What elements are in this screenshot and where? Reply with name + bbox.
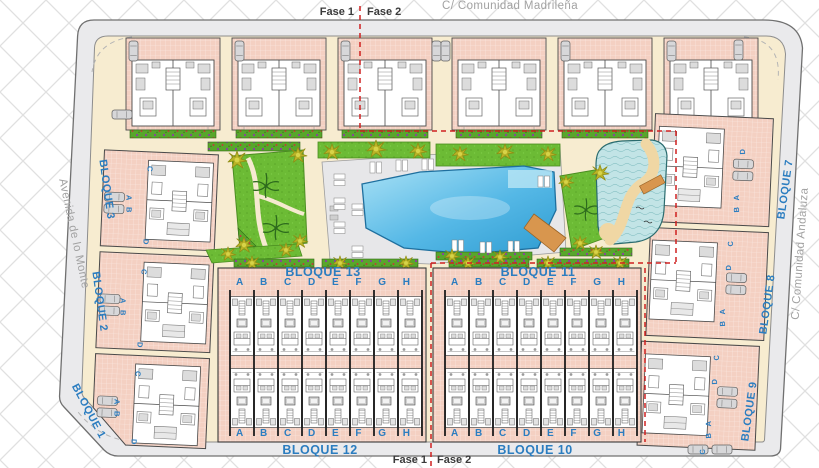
- unit-letter: D: [523, 278, 530, 288]
- side-unit-letter: C: [699, 449, 707, 455]
- side-unit-letter: B: [733, 207, 741, 213]
- unit-letter: E: [332, 429, 339, 439]
- unit-letter: C: [284, 278, 291, 288]
- unit-letter: A: [451, 429, 458, 439]
- unit-letter: E: [332, 278, 339, 288]
- bloque-label-10: BLOQUE 10: [475, 444, 595, 457]
- unit-letter: B: [260, 278, 267, 288]
- unit-letter: C: [284, 429, 291, 439]
- unit-letter: C: [499, 278, 506, 288]
- unit-letter: E: [547, 429, 554, 439]
- unit-letter: B: [475, 278, 482, 288]
- side-unit-letter: A: [113, 399, 121, 405]
- side-unit-letter: D: [142, 239, 150, 245]
- side-unit-letter: C: [140, 269, 148, 275]
- side-unit-letter: C: [146, 166, 154, 172]
- side-unit-letter: B: [705, 433, 713, 439]
- side-unit-letter: D: [725, 265, 733, 271]
- unit-letter: C: [499, 429, 506, 439]
- unit-letter: D: [523, 429, 530, 439]
- side-unit-letter: C: [713, 355, 721, 361]
- unit-letter-row-bloque-12: A B C D E F G H: [236, 429, 410, 439]
- unit-letter: D: [308, 429, 315, 439]
- bloque-label-12: BLOQUE 12: [260, 444, 380, 457]
- unit-letter: H: [618, 278, 625, 288]
- unit-letter: A: [236, 429, 243, 439]
- unit-letter: F: [570, 429, 576, 439]
- unit-letter: B: [475, 429, 482, 439]
- phase-label-bottom-fase2: Fase 2: [437, 455, 471, 466]
- phase-label-top-fase1: Fase 1: [312, 7, 354, 18]
- street-name-top: C/ Comunidad Madrileña: [400, 1, 620, 13]
- unit-letter: A: [451, 278, 458, 288]
- site-plan-svg: [0, 0, 819, 468]
- side-unit-letter: D: [136, 342, 144, 348]
- unit-letter: G: [593, 429, 601, 439]
- phase-label-top-fase2: Fase 2: [367, 7, 401, 18]
- side-unit-letter: D: [711, 379, 719, 385]
- unit-letter: F: [355, 278, 361, 288]
- phase-label-bottom-fase1: Fase 1: [385, 455, 427, 466]
- side-unit-letter: A: [125, 195, 133, 201]
- unit-letter: H: [403, 278, 410, 288]
- side-unit-letter: C: [727, 241, 735, 247]
- unit-letter: F: [570, 278, 576, 288]
- side-unit-letter: A: [705, 421, 713, 427]
- unit-letter: H: [403, 429, 410, 439]
- side-unit-letter: D: [130, 439, 138, 445]
- hedge-strip: [208, 142, 300, 151]
- central-amenity: [206, 140, 667, 269]
- bloque-label-11: BLOQUE 11: [478, 266, 598, 279]
- unit-letter-row-bloque-13: A B C D E F G H: [236, 278, 410, 288]
- side-unit-letter: A: [119, 298, 127, 304]
- bloque-label-13: BLOQUE 13: [263, 266, 383, 279]
- side-unit-letter: A: [733, 195, 741, 201]
- site-plan-canvas: C/ Comunidad Madrileña Avenida de lo Mon…: [0, 0, 819, 468]
- unit-letter: G: [593, 278, 601, 288]
- bloque-11-10-slab: [433, 268, 641, 442]
- side-unit-letter: B: [125, 207, 133, 213]
- side-unit-letter: B: [113, 411, 121, 417]
- unit-letter: B: [260, 429, 267, 439]
- side-unit-letter: C: [134, 371, 142, 377]
- unit-letter: H: [618, 429, 625, 439]
- unit-letter-row-bloque-10: A B C D E F G H: [451, 429, 625, 439]
- unit-letter: A: [236, 278, 243, 288]
- side-unit-letter: B: [719, 321, 727, 327]
- side-unit-letter: D: [739, 149, 747, 155]
- unit-letter: E: [547, 278, 554, 288]
- unit-letter: F: [355, 429, 361, 439]
- unit-letter: D: [308, 278, 315, 288]
- unit-letter: G: [378, 278, 386, 288]
- side-unit-letter: A: [719, 309, 727, 315]
- side-unit-letter: B: [119, 310, 127, 316]
- unit-letter: G: [378, 429, 386, 439]
- bloque-13-12-slab: [218, 268, 426, 442]
- unit-letter-row-bloque-11: A B C D E F G H: [451, 278, 625, 288]
